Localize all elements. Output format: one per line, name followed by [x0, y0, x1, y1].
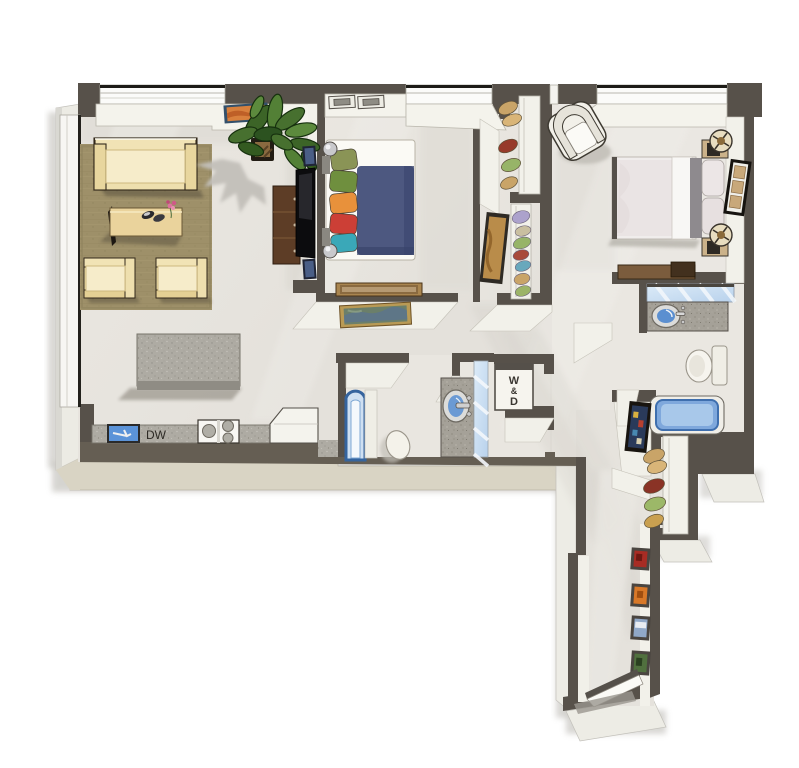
- svg-text:&: &: [511, 386, 518, 396]
- svg-text:D: D: [510, 396, 518, 408]
- svg-text:DW: DW: [146, 428, 167, 442]
